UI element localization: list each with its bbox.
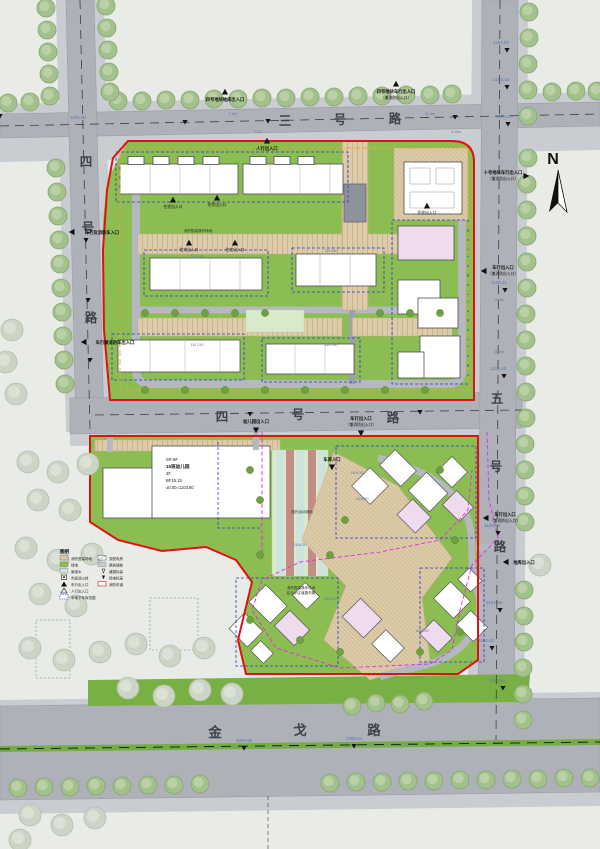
dimension: 11.5m — [425, 112, 435, 116]
legend-item: 消防车道 — [109, 582, 123, 587]
kindergarten-floors: 4F — [166, 471, 171, 476]
fire-access-note: 结合小区道路布置 — [287, 590, 316, 595]
elevation: 1103.64 — [489, 678, 505, 683]
entrance-sublabel: （兼消防出入口） — [488, 176, 518, 181]
site-plan-svg: 三 号 路 四 号 路 四 号 路 五 号 路 金 戈 路 四号地块地库出入口 … — [0, 0, 600, 849]
road-char: 戈 — [293, 722, 307, 738]
legend-swatch-hydrant-dot — [63, 576, 65, 578]
elevation: 1105.08 — [484, 523, 500, 528]
road-char: 号 — [490, 459, 503, 474]
legend-item: 道路标高 — [109, 569, 123, 574]
road-char: 路 — [389, 111, 402, 126]
entrance-label: 十号地块车行出入口 — [484, 169, 523, 176]
elevation: 1104.00 — [323, 597, 336, 601]
entrance-label: 四号地块地库出入口 — [206, 96, 245, 103]
kindergarten-building — [103, 468, 155, 518]
courts-note: 室外活动场地 — [291, 509, 313, 514]
road-char: 金 — [207, 724, 222, 740]
legend-item: 绿地 — [71, 563, 78, 568]
legend-item: 半地下车库范围 — [71, 595, 96, 600]
legend-item: 硬质铺装 — [109, 563, 123, 568]
road-char: 四 — [216, 410, 229, 424]
entrance-sublabel: （兼消防出入口） — [381, 95, 411, 100]
road-char: 路 — [85, 310, 98, 325]
legend-swatch-paving — [98, 562, 106, 567]
dimension: 2.5m — [229, 112, 237, 116]
entrance-label: 地库出入口 — [513, 559, 534, 566]
elevation: 1107.80 — [324, 343, 337, 347]
entrance-label: 车行兼消防车出入口 — [96, 339, 135, 346]
legend-item: 变配电房 — [109, 556, 123, 561]
entrance-label: 住宅出入口 — [226, 247, 245, 252]
kindergarten-name: 15班幼儿园 — [166, 463, 190, 470]
road-char: 号 — [334, 112, 347, 127]
elevation: 1105.90 — [70, 115, 86, 120]
elevation: 1105.18 — [490, 366, 506, 371]
elevation: 1107.50 — [190, 343, 203, 347]
road-char: 五 — [491, 392, 504, 406]
legend-swatch-green — [60, 562, 68, 567]
entrance-label: 车行出入口 — [350, 415, 371, 422]
dimension: 10.5m — [494, 298, 504, 302]
entrance-label: 人行出入口 — [255, 145, 277, 152]
legend-swatch-basement — [60, 595, 68, 600]
legend-item: 市政消火栓 — [71, 576, 89, 581]
elevation: 1105.21 — [491, 280, 507, 285]
elevation: 1086.85 — [236, 738, 253, 743]
kindergarten-datum: ±0.00=1103.60 — [166, 485, 194, 490]
elevation: 1105.16 — [493, 77, 509, 82]
north-label: N — [547, 151, 559, 168]
entrance-label: 住宅出入口 — [180, 247, 199, 252]
entrance-label: 住宅出入口 — [418, 210, 437, 215]
elevation: 1104.83 — [493, 40, 509, 45]
elevation: 1104.00 — [415, 629, 428, 633]
entrance-label: 车行及消防车入口 — [85, 229, 119, 236]
elevation: 1104.52 — [478, 638, 494, 643]
elevation: 1104.50 — [355, 497, 368, 501]
dimension: 5.12 — [254, 130, 261, 134]
entrance-label: 车行出入口 — [494, 511, 515, 518]
entrance-label: 车库入口 — [323, 456, 340, 463]
legend-swatch-water — [60, 569, 68, 574]
road-char: 号 — [292, 407, 305, 422]
elevation: 1104.30 — [293, 543, 306, 547]
fire-access-note: 消防登高操作场地 — [287, 585, 316, 590]
dimension: 4.12m — [451, 130, 461, 134]
road-char: 路 — [494, 539, 507, 554]
entrance-label: 幼儿园出入口 — [243, 418, 269, 425]
entrance-label: 四号地块车行出入口 — [377, 88, 416, 95]
elevation: 1105.47 — [496, 114, 512, 119]
entrance-sublabel: （兼消防出入口） — [346, 422, 376, 427]
entrance-label: 住宅出入口 — [164, 204, 183, 209]
elevation: 1107.80 — [324, 249, 337, 253]
elevation: 1107.50 — [190, 255, 203, 259]
legend-title: 图例 — [60, 548, 70, 555]
dimension: 11.5m — [494, 350, 504, 354]
entrance-sublabel: （兼消防出入口） — [488, 271, 518, 276]
elevation: 1089.64 — [346, 736, 363, 741]
road-char: 路 — [387, 410, 400, 425]
legend-swatch-fire-lane — [98, 582, 106, 587]
entrance-label: 住宅出入口 — [208, 202, 227, 207]
site-plan-canvas: 三 号 路 四 号 路 四 号 路 五 号 路 金 戈 路 四号地块地库出入口 … — [0, 0, 600, 849]
entrance-label: 车行出入口 — [492, 264, 513, 271]
legend-item: 景观水 — [71, 569, 82, 574]
road-char: 四 — [80, 155, 93, 169]
fire-access-note: 消防登高操作场地 — [184, 228, 213, 233]
legend-item: 人行出入口 — [71, 589, 89, 594]
elevation: 1104.66 — [486, 600, 502, 605]
road-char: 三 — [279, 114, 292, 128]
kindergarten-code: SP-5# — [166, 457, 178, 462]
road-char: 路 — [367, 722, 381, 738]
legend-item: 场地标高 — [109, 576, 123, 581]
legend-item: 消防登高场地 — [71, 556, 92, 561]
legend-item: 车行出入口 — [71, 582, 89, 587]
elevation: 1104.50 — [350, 471, 363, 475]
road-no5 — [478, 0, 518, 745]
legend-swatch-fire-area — [60, 556, 68, 561]
kindergarten-height: BF16.15 — [166, 478, 183, 483]
